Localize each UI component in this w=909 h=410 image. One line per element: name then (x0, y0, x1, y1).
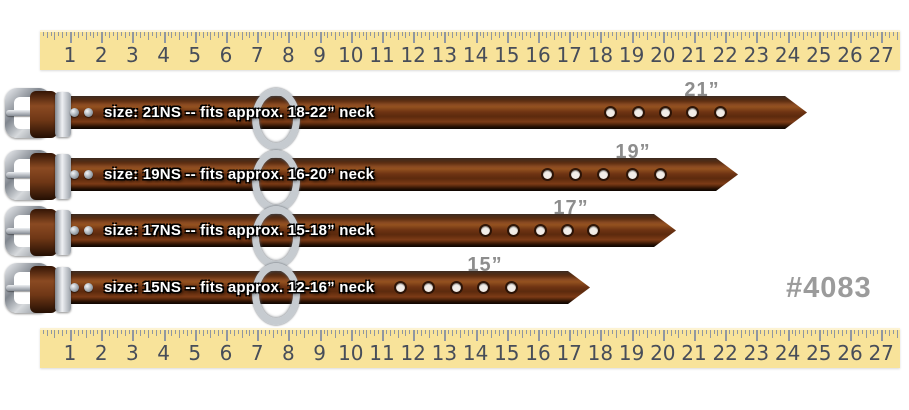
ruler-tick (226, 32, 228, 43)
ruler-tick (577, 32, 578, 38)
ruler-tick (78, 330, 79, 336)
ruler-tick (741, 330, 742, 338)
ruler-tick (663, 32, 665, 43)
ruler-top: 1234567891011121314151617181920212223242… (40, 30, 900, 70)
ruler-tick (667, 32, 668, 36)
ruler-tick (409, 330, 410, 334)
ruler-tick (234, 32, 235, 38)
ruler-tick (756, 32, 758, 43)
strap-hole (479, 283, 488, 292)
ruler-number: 10 (338, 43, 363, 67)
ruler-tick (90, 32, 91, 36)
strap-hole (481, 226, 490, 235)
ruler-number: 6 (220, 341, 233, 365)
ruler-tick (320, 32, 322, 43)
ruler-tick (881, 32, 883, 43)
ruler-tick (690, 330, 691, 334)
ruler-tick (93, 330, 94, 336)
ruler-tick (441, 330, 442, 334)
ruler-tick (620, 330, 621, 334)
ruler-tick (43, 32, 44, 36)
ruler-number: 4 (157, 43, 170, 67)
ruler-tick (234, 330, 235, 336)
ruler-tick (772, 32, 773, 40)
ruler-tick (281, 330, 282, 336)
ruler-number: 8 (282, 341, 295, 365)
leather-fold (30, 153, 57, 200)
ruler-number: 2 (95, 341, 108, 365)
ruler-tick (526, 32, 527, 36)
ruler-tick (862, 330, 863, 334)
ruler-tick (90, 330, 91, 334)
ruler-tick (749, 32, 750, 38)
ruler-tick (152, 32, 153, 36)
ruler-number: 21 (681, 341, 706, 365)
ruler-tick (62, 330, 63, 336)
ruler-tick (889, 330, 890, 336)
ruler-tick (889, 32, 890, 38)
ruler-tick (261, 330, 262, 334)
ruler-tick (121, 32, 122, 36)
ruler-tick (834, 330, 835, 338)
ruler-tick (850, 32, 852, 43)
ruler-tick (823, 32, 824, 36)
ruler-tick (600, 32, 602, 43)
ruler-tick (464, 330, 465, 334)
ruler-tick (51, 32, 52, 36)
ruler-tick (456, 32, 457, 36)
ruler-tick (382, 32, 384, 43)
ruler-tick (132, 330, 134, 341)
ruler-tick (242, 330, 243, 338)
ruler-tick (675, 330, 676, 334)
ruler-tick (82, 32, 83, 36)
ruler-tick (207, 330, 208, 334)
ruler-tick (175, 330, 176, 334)
ruler-tick (277, 330, 278, 334)
rivet-icon (70, 108, 79, 117)
ruler-number: 12 (400, 43, 425, 67)
ruler-tick (179, 330, 180, 338)
ruler-tick (671, 32, 672, 38)
ruler-tick (304, 32, 305, 40)
product-image: 1234567891011121314151617181920212223242… (0, 0, 909, 410)
ruler-tick (897, 330, 898, 338)
ruler-number: 14 (463, 43, 488, 67)
ruler-tick (265, 32, 266, 38)
ruler-tick (550, 330, 551, 334)
ruler-tick (678, 330, 679, 338)
ruler-tick (125, 32, 126, 38)
ruler-number: 8 (282, 43, 295, 67)
ruler-tick (745, 330, 746, 334)
ruler-tick (437, 330, 438, 336)
ruler-tick (171, 330, 172, 336)
ruler-tick (378, 330, 379, 334)
ruler-tick (870, 32, 871, 36)
ruler-number: 23 (744, 341, 769, 365)
ruler-tick (156, 32, 157, 38)
ruler-tick (815, 32, 816, 36)
ruler-tick (238, 330, 239, 334)
ruler-tick (54, 330, 55, 338)
ruler-tick (257, 32, 259, 43)
ruler-number: 18 (588, 43, 613, 67)
ruler-tick (616, 32, 617, 40)
ruler-tick (838, 32, 839, 36)
ruler-tick (444, 330, 446, 341)
ruler-tick (858, 330, 859, 336)
ruler-tick (390, 330, 391, 336)
ruler-tick (210, 32, 211, 40)
ruler-number: 17 (556, 43, 581, 67)
ruler-tick (429, 330, 430, 338)
ruler-tick (324, 330, 325, 334)
ruler-tick (370, 330, 371, 334)
ruler-tick (394, 330, 395, 334)
ruler-tick (897, 32, 898, 40)
ruler-tick (308, 330, 309, 334)
ruler-tick (66, 330, 67, 334)
ruler-tick (382, 330, 384, 341)
ruler-tick (811, 32, 812, 38)
ruler-tick (659, 32, 660, 36)
ruler-tick (651, 32, 652, 36)
ruler-tick (160, 32, 161, 36)
ruler-tick (156, 330, 157, 336)
ruler-tick (355, 32, 356, 36)
strap-hole (507, 283, 516, 292)
ruler-tick (803, 330, 804, 338)
ruler-tick (616, 330, 617, 338)
ruler-tick (846, 330, 847, 334)
ruler-tick (366, 330, 367, 338)
ruler-tick (148, 32, 149, 40)
ruler-number: 10 (338, 341, 363, 365)
ruler-number: 17 (556, 341, 581, 365)
ruler-tick (226, 330, 228, 341)
ruler-number: 24 (775, 341, 800, 365)
ruler-tick (207, 32, 208, 36)
ruler-tick (682, 32, 683, 36)
ruler-number: 25 (806, 341, 831, 365)
ruler-tick (386, 32, 387, 36)
ruler-tick (647, 32, 648, 40)
ruler-tick (663, 330, 665, 341)
ruler-tick (565, 330, 566, 334)
ruler-number: 26 (837, 43, 862, 67)
ruler-tick (468, 32, 469, 38)
ruler-tick (694, 32, 696, 43)
ruler-tick (764, 330, 765, 336)
ruler-tick (647, 330, 648, 338)
ruler-tick (218, 32, 219, 38)
ruler-tick (253, 32, 254, 36)
ruler-tick (86, 330, 87, 338)
ruler-tick (866, 330, 867, 338)
strap-length-label: 15” (445, 254, 525, 277)
ruler-tick (405, 330, 406, 336)
ruler-tick (308, 32, 309, 36)
ruler-tick (285, 32, 286, 36)
ruler-tick (82, 330, 83, 334)
rivet-icon (84, 226, 93, 235)
strap-hole (688, 108, 697, 117)
ruler-tick (628, 32, 629, 36)
ruler-tick (129, 330, 130, 334)
ruler-tick (499, 330, 500, 336)
rivet-icon (84, 283, 93, 292)
ruler-tick (706, 32, 707, 36)
ruler-number: 2 (95, 43, 108, 67)
ruler-tick (370, 32, 371, 36)
ruler-tick (288, 330, 290, 341)
ruler-tick (441, 32, 442, 36)
ruler-tick (749, 330, 750, 336)
ruler-tick (417, 32, 418, 36)
ruler-tick (827, 32, 828, 38)
ruler-tick (199, 330, 200, 334)
ruler-tick (881, 330, 883, 341)
ruler-tick (753, 32, 754, 36)
ruler-number: 19 (619, 43, 644, 67)
ruler-tick (710, 32, 711, 40)
ruler-tick (269, 330, 270, 334)
ruler-tick (433, 330, 434, 334)
product-code: #4083 (786, 272, 872, 305)
ruler-number: 14 (463, 341, 488, 365)
ruler-tick (729, 32, 730, 36)
strap-hole (628, 170, 637, 179)
ruler-tick (756, 330, 758, 341)
ruler-tick (893, 32, 894, 36)
ruler-tick (405, 32, 406, 38)
ruler-tick (448, 330, 449, 334)
ruler-tick (819, 330, 821, 341)
ruler-tick (530, 32, 531, 38)
ruler-tick (710, 330, 711, 338)
ruler-tick (799, 32, 800, 36)
ruler-tick (468, 330, 469, 336)
ruler-tick (827, 330, 828, 336)
ruler-tick (472, 330, 473, 334)
ruler-tick (402, 32, 403, 36)
ruler-tick (413, 330, 415, 341)
ruler-tick (43, 330, 44, 334)
ruler-tick (312, 32, 313, 38)
ruler-tick (799, 330, 800, 334)
ruler-tick (866, 32, 867, 40)
ruler-tick (74, 330, 75, 334)
ruler-tick (550, 32, 551, 36)
ruler-tick (885, 32, 886, 36)
ruler-tick (725, 330, 727, 341)
ruler-number: 15 (494, 341, 519, 365)
ruler-tick (745, 32, 746, 36)
ruler-number: 3 (126, 43, 139, 67)
ruler-tick (768, 330, 769, 334)
ruler-tick (273, 32, 274, 40)
ruler-tick (612, 330, 613, 334)
ruler-number: 22 (712, 43, 737, 67)
strap-size-description: size: 21NS -- fits approx. 18-22” neck (104, 104, 374, 121)
ruler-number: 27 (868, 341, 893, 365)
ruler-number: 21 (681, 43, 706, 67)
ruler-tick (148, 330, 149, 338)
ruler-tick (784, 32, 785, 36)
ruler-tick (183, 32, 184, 36)
ruler-tick (296, 330, 297, 336)
ruler-number: 26 (837, 341, 862, 365)
keeper-loop-icon (55, 154, 71, 199)
ruler-tick (246, 330, 247, 334)
ruler-tick (409, 32, 410, 36)
ruler-tick (558, 32, 559, 36)
ruler-tick (706, 330, 707, 334)
ruler-tick (846, 32, 847, 36)
strap-hole (543, 170, 552, 179)
ruler-tick (589, 32, 590, 36)
ruler-tick (686, 330, 687, 336)
ruler-number: 15 (494, 43, 519, 67)
ruler-tick (597, 330, 598, 334)
ruler-tick (702, 330, 703, 336)
ruler-tick (261, 32, 262, 36)
ruler-tick (694, 330, 696, 341)
ruler-tick (74, 32, 75, 36)
ruler-tick (573, 32, 574, 36)
ruler-tick (347, 330, 348, 334)
ruler-tick (589, 330, 590, 334)
strap-hole (661, 108, 670, 117)
ruler-tick (292, 330, 293, 334)
ruler-tick (160, 330, 161, 334)
ruler-tick (834, 32, 835, 40)
ruler-tick (815, 330, 816, 334)
ruler-tick (737, 330, 738, 334)
ruler-tick (175, 32, 176, 36)
ruler-tick (604, 32, 605, 36)
ruler-tick (522, 32, 523, 40)
ruler-tick (764, 32, 765, 38)
ruler-tick (429, 32, 430, 40)
ruler-tick (425, 32, 426, 36)
ruler-bottom: 1234567891011121314151617181920212223242… (40, 328, 900, 368)
ruler-tick (831, 32, 832, 36)
ruler-tick (542, 330, 543, 334)
ruler-number: 12 (400, 341, 425, 365)
ruler-tick (530, 330, 531, 336)
collar-strap-15ns: size: 15NS -- fits approx. 12-16” neck 1… (0, 261, 909, 317)
ruler-tick (675, 32, 676, 36)
ruler-tick (62, 32, 63, 38)
ruler-tick (522, 330, 523, 338)
ruler-number: 22 (712, 341, 737, 365)
ruler-tick (842, 330, 843, 336)
ruler-tick (873, 330, 874, 336)
ruler-tick (374, 330, 375, 336)
ruler-tick (807, 330, 808, 334)
ruler-number: 1 (64, 341, 77, 365)
ruler-tick (659, 330, 660, 334)
ruler-tick (643, 32, 644, 36)
ruler-tick (538, 330, 540, 341)
ruler-number: 23 (744, 43, 769, 67)
ruler-tick (760, 330, 761, 334)
ruler-tick (503, 32, 504, 36)
ruler-tick (717, 32, 718, 38)
ruler-tick (425, 330, 426, 334)
ruler-tick (542, 32, 543, 36)
ruler-number: 5 (188, 43, 201, 67)
ruler-number: 20 (650, 341, 675, 365)
ruler-tick (604, 330, 605, 334)
ruler-tick (499, 32, 500, 38)
ruler-tick (507, 330, 509, 341)
ruler-tick (437, 32, 438, 38)
ruler-tick (534, 330, 535, 334)
ruler-tick (398, 32, 399, 40)
ruler-tick (877, 330, 878, 334)
ruler-tick (113, 330, 114, 334)
leather-fold (30, 209, 57, 256)
keeper-loop-icon (55, 92, 71, 137)
strap-hole (563, 226, 572, 235)
ruler-number: 24 (775, 43, 800, 67)
ruler-tick (320, 330, 322, 341)
ruler-tick (792, 32, 793, 36)
ruler-tick (347, 32, 348, 36)
ruler-tick (144, 330, 145, 334)
ruler-tick (702, 32, 703, 38)
strap-hole (424, 283, 433, 292)
ruler-tick (456, 330, 457, 334)
ruler-tick (230, 330, 231, 334)
ruler-number: 7 (251, 43, 264, 67)
ruler-tick (168, 32, 169, 36)
rivet-icon (70, 226, 79, 235)
ruler-tick (495, 330, 496, 334)
ruler-number: 13 (432, 43, 457, 67)
ruler-tick (47, 32, 48, 38)
ruler-tick (460, 32, 461, 40)
strap-hole (716, 108, 725, 117)
keeper-loop-icon (55, 267, 71, 312)
ruler-tick (608, 330, 609, 336)
ruler-tick (335, 330, 336, 338)
ruler-tick (285, 330, 286, 334)
ruler-tick (359, 32, 360, 38)
strap-hole (606, 108, 615, 117)
ruler-tick (351, 330, 353, 341)
ruler-tick (831, 330, 832, 334)
ruler-tick (721, 330, 722, 334)
ruler-tick (686, 32, 687, 38)
ruler-tick (491, 330, 492, 338)
ruler-tick (222, 330, 223, 334)
ruler-tick (448, 32, 449, 36)
ruler-tick (546, 330, 547, 336)
ruler-tick (784, 330, 785, 334)
ruler-tick (70, 32, 72, 43)
ruler-tick (717, 330, 718, 336)
ruler-tick (561, 330, 562, 336)
ruler-tick (561, 32, 562, 38)
ruler-tick (842, 32, 843, 38)
ruler-number: 19 (619, 341, 644, 365)
ruler-tick (199, 32, 200, 36)
ruler-number: 27 (868, 43, 893, 67)
